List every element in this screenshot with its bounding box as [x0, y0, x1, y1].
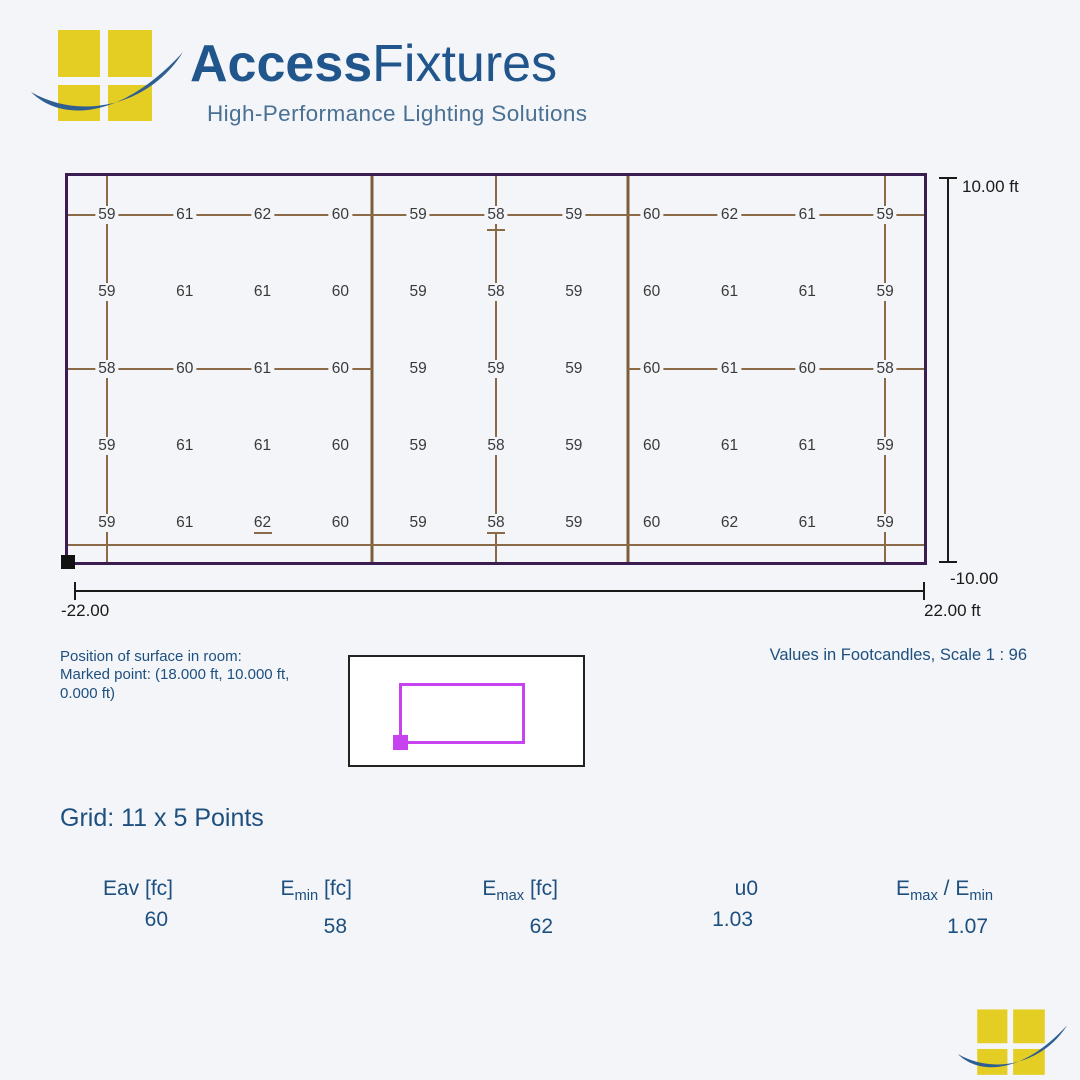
grid-value: 60: [796, 360, 819, 378]
grid-value: 62: [718, 514, 741, 532]
stat-label: Eav [fc]: [60, 876, 173, 902]
grid-value: 60: [329, 514, 352, 532]
stat-value: 58: [240, 914, 352, 940]
stat-cell: u01.03: [680, 876, 758, 933]
stats-row: Eav [fc]60Emin [fc]58Emax [fc]62u01.03Em…: [0, 876, 1080, 956]
stat-cell: Emax [fc]62: [440, 876, 558, 940]
footer-logo-icon: [975, 1008, 1047, 1077]
stat-cell: Emax / Emin1.07: [860, 876, 993, 940]
grid-value: 60: [329, 360, 352, 378]
grid-value: 60: [640, 283, 663, 301]
grid-value: 59: [407, 283, 430, 301]
surface-position-text: Position of surface in room: Marked poin…: [60, 648, 390, 703]
surface-origin-dot: [393, 735, 408, 750]
stat-value: 1.07: [860, 914, 993, 940]
grid-value: 61: [173, 514, 196, 532]
grid-value: 59: [95, 206, 118, 224]
grid-value: 59: [407, 206, 430, 224]
grid-value: 59: [562, 437, 585, 455]
illuminance-grid-chart: 5961626059585960626159596161605958596061…: [65, 173, 927, 565]
grid-value: 59: [562, 360, 585, 378]
grid-value: 58: [95, 360, 118, 378]
grid-value: 59: [95, 514, 118, 532]
stat-value: 60: [60, 907, 173, 933]
stat-cell: Eav [fc]60: [60, 876, 173, 933]
grid-value: 58: [484, 206, 507, 224]
grid-value: 62: [251, 514, 274, 532]
x-axis-left-label: -22.00: [61, 601, 109, 621]
grid-value: 61: [718, 360, 741, 378]
stat-cell: Emin [fc]58: [240, 876, 352, 940]
x-dimension-cap-left: [74, 582, 76, 600]
y-axis-top-label: 10.00 ft: [962, 177, 1019, 197]
grid-value: 60: [329, 283, 352, 301]
values-note: Values in Footcandles, Scale 1 : 96: [770, 646, 1027, 665]
stat-label: Emax [fc]: [440, 876, 558, 909]
grid-value: 61: [251, 437, 274, 455]
lighting-report-page: AccessFixtures High-Performance Lighting…: [0, 0, 1080, 1080]
grid-value: 60: [640, 360, 663, 378]
grid-value: 59: [873, 437, 896, 455]
grid-value: 61: [251, 283, 274, 301]
grid-value: 60: [640, 437, 663, 455]
marked-point-square: [61, 555, 75, 569]
surface-outline: [399, 683, 525, 744]
grid-title: Grid: 11 x 5 Points: [60, 804, 264, 833]
stat-value: 62: [440, 914, 558, 940]
brand-title: AccessFixtures: [190, 36, 557, 93]
stat-label: Emax / Emin: [860, 876, 993, 909]
y-dimension-cap-top: [939, 177, 957, 179]
y-dimension-cap-bottom: [939, 561, 957, 563]
grid-value: 59: [562, 206, 585, 224]
grid-value: 62: [718, 206, 741, 224]
stat-label: u0: [680, 876, 758, 902]
grid-value: 59: [407, 437, 430, 455]
grid-value: 59: [407, 360, 430, 378]
x-axis-right-label: 22.00 ft: [924, 601, 981, 621]
grid-value: 60: [640, 514, 663, 532]
grid-value: 61: [796, 437, 819, 455]
grid-value: 62: [251, 206, 274, 224]
room-position-diagram: [348, 655, 585, 767]
grid-value: 61: [796, 206, 819, 224]
access-fixtures-logo-icon: [55, 28, 155, 124]
grid-value: 58: [484, 437, 507, 455]
grid-value: 59: [562, 514, 585, 532]
grid-value: 59: [95, 283, 118, 301]
grid-value: 58: [484, 283, 507, 301]
grid-value: 61: [718, 437, 741, 455]
grid-value: 59: [873, 514, 896, 532]
grid-value: 60: [329, 437, 352, 455]
grid-value: 61: [796, 283, 819, 301]
grid-value: 60: [173, 360, 196, 378]
grid-value: 60: [640, 206, 663, 224]
grid-value: 59: [562, 283, 585, 301]
grid-value: 60: [329, 206, 352, 224]
y-axis-bottom-label: -10.00: [950, 569, 998, 589]
grid-value: 58: [873, 360, 896, 378]
grid-value: 61: [718, 283, 741, 301]
x-dimension-cap-right: [923, 582, 925, 600]
grid-value: 58: [484, 514, 507, 532]
y-dimension-line: [947, 178, 949, 563]
grid-values-layer: 5961626059585960626159596161605958596061…: [68, 176, 924, 562]
grid-value: 61: [251, 360, 274, 378]
grid-value: 61: [796, 514, 819, 532]
grid-value: 61: [173, 206, 196, 224]
grid-value: 59: [484, 360, 507, 378]
x-dimension-line: [75, 590, 924, 592]
grid-value: 59: [407, 514, 430, 532]
brand-tagline: High-Performance Lighting Solutions: [207, 101, 587, 127]
brand-name-bold: Access: [190, 35, 372, 93]
grid-value: 59: [873, 206, 896, 224]
grid-value: 59: [873, 283, 896, 301]
grid-value: 61: [173, 437, 196, 455]
stat-label: Emin [fc]: [240, 876, 352, 909]
grid-value: 59: [95, 437, 118, 455]
stat-value: 1.03: [680, 907, 758, 933]
grid-value: 61: [173, 283, 196, 301]
brand-name-regular: Fixtures: [372, 35, 557, 93]
